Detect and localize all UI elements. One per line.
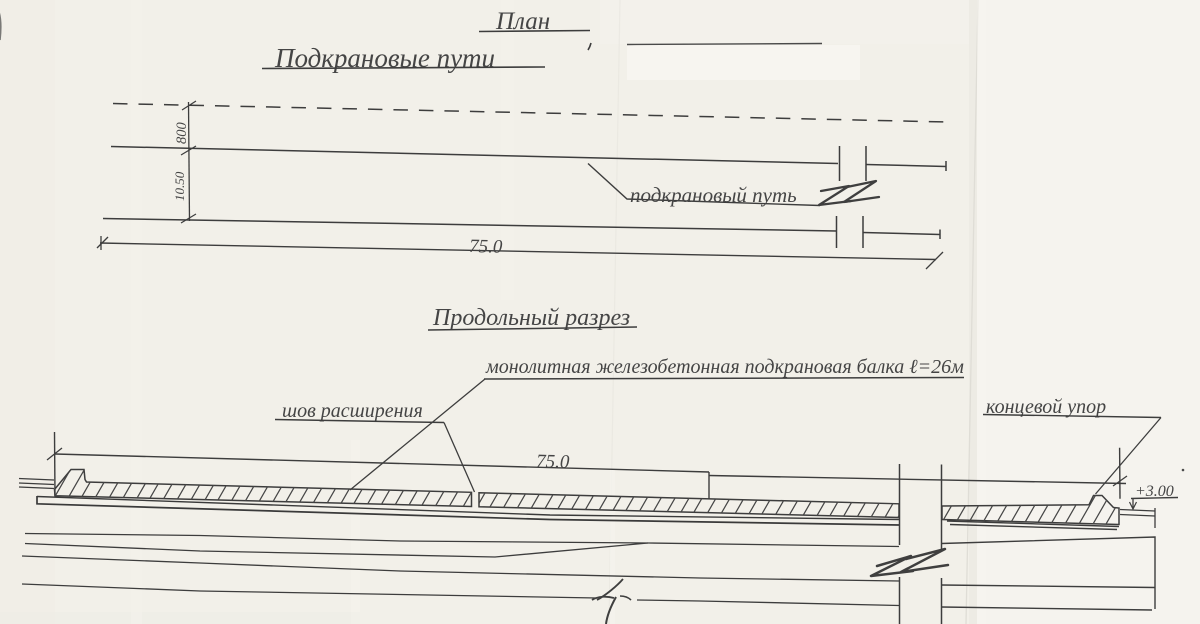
svg-text:75.0: 75.0 <box>536 451 570 473</box>
svg-text:монолитная железобетонная подк: монолитная железобетонная подкрановая ба… <box>485 356 964 378</box>
svg-text:75.0: 75.0 <box>469 236 503 258</box>
svg-text:шов расширения: шов расширения <box>282 400 423 422</box>
svg-text:10.50: 10.50 <box>172 171 187 201</box>
svg-text:800: 800 <box>174 122 190 145</box>
svg-text:подкрановый путь: подкрановый путь <box>630 183 797 207</box>
